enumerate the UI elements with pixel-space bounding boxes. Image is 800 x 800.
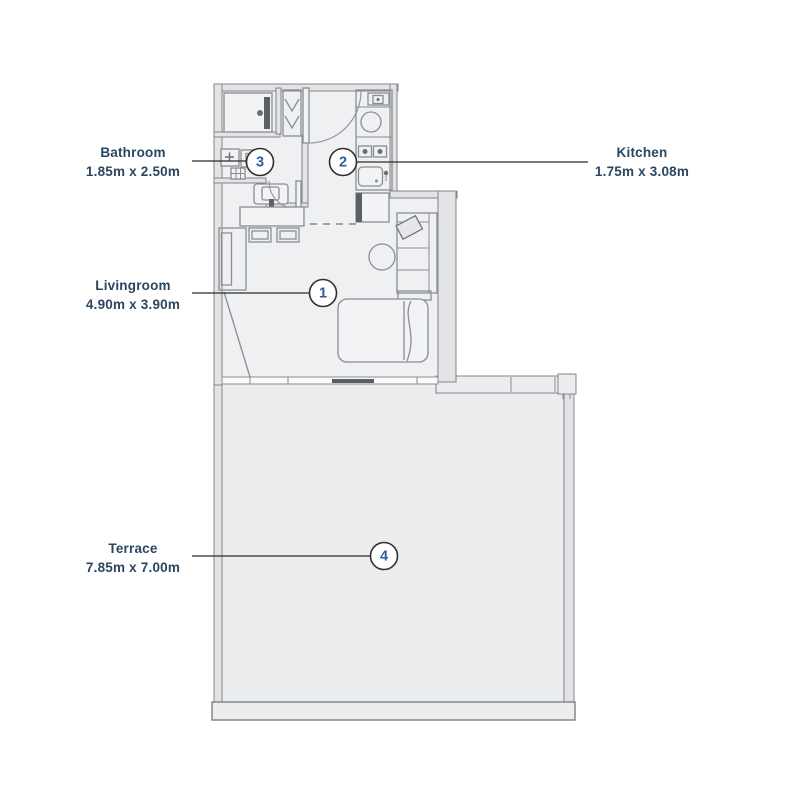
terrace-floor	[220, 378, 566, 702]
terrace-left-railing	[214, 384, 222, 704]
terrace-label-dims: 7.85m x 7.00m	[53, 558, 213, 577]
sink-faucet-icon	[384, 171, 388, 175]
bathroom-label: Bathroom 1.85m x 2.50m	[53, 143, 213, 181]
bathroom-label-name: Bathroom	[100, 145, 165, 160]
floor-plan-drawing: 1 2 3 4	[0, 0, 800, 800]
room-marker-number: 3	[256, 155, 264, 171]
wall-right-lower	[438, 191, 456, 382]
bathroom-label-dims: 1.85m x 2.50m	[53, 162, 213, 181]
livingroom-label: Livingroom 4.90m x 3.90m	[53, 276, 213, 314]
terrace-label-name: Terrace	[108, 541, 157, 556]
entry-door-leaf	[303, 88, 309, 143]
terrace-label: Terrace 7.85m x 7.00m	[53, 539, 213, 577]
kitchen-label-dims: 1.75m x 3.08m	[562, 162, 722, 181]
bathtub-tap	[257, 110, 263, 116]
wall-shower-bottom	[214, 132, 280, 137]
room-marker-number: 1	[319, 286, 327, 302]
terrace-bottom-band	[212, 702, 575, 720]
livingroom-label-name: Livingroom	[95, 278, 171, 293]
wall-right-upper	[390, 84, 397, 198]
window-wall	[222, 377, 438, 384]
wall-left	[214, 84, 222, 385]
kitchen-label-name: Kitchen	[617, 145, 668, 160]
room-marker-number: 4	[380, 549, 388, 565]
terrace-right-railing	[564, 392, 574, 704]
kitchen-sink	[359, 167, 383, 186]
bathtub-screen	[264, 97, 270, 129]
door-threshold	[332, 379, 374, 383]
wall-hall	[302, 135, 308, 207]
room-marker-number: 2	[339, 155, 347, 171]
bathroom-door-leaf	[296, 181, 301, 208]
wall-shower-right	[276, 88, 281, 134]
floor-plan-page: 1 2 3 4 Bathroom 1.85m x 2.50m Kitchen 1…	[0, 0, 800, 800]
bed	[338, 299, 428, 362]
livingroom-label-dims: 4.90m x 3.90m	[53, 295, 213, 314]
terrace-planter-cap	[558, 374, 576, 394]
dining-table	[240, 207, 304, 226]
kitchen-label: Kitchen 1.75m x 3.08m	[562, 143, 722, 181]
